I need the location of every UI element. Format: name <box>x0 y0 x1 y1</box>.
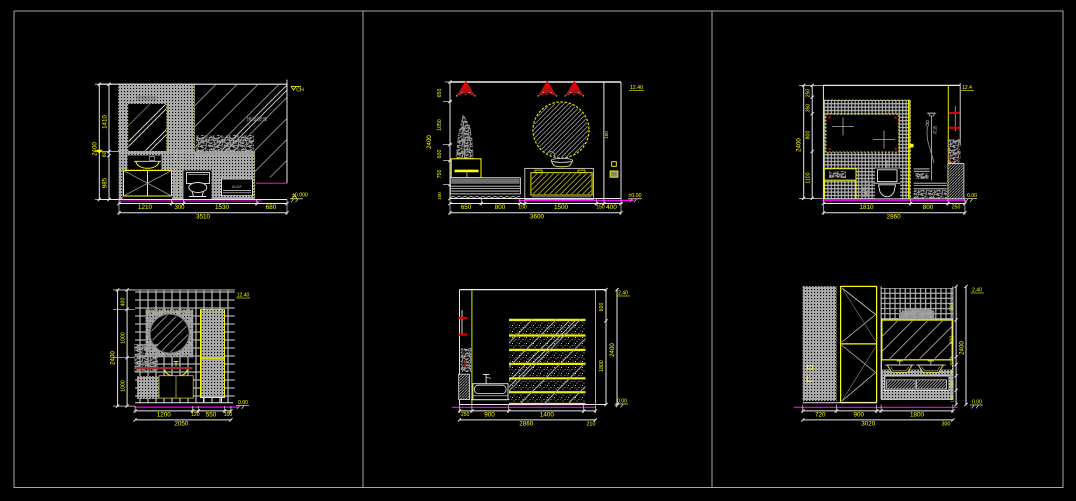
svg-text:800: 800 <box>923 204 934 211</box>
svg-text:±0.00: ±0.00 <box>629 193 642 199</box>
svg-text:1530: 1530 <box>215 204 230 211</box>
svg-text:210: 210 <box>587 421 596 427</box>
svg-text:900: 900 <box>484 411 495 418</box>
svg-text:600: 600 <box>437 150 443 159</box>
svg-text:250: 250 <box>949 359 954 367</box>
svg-text:1410: 1410 <box>102 115 109 129</box>
svg-text:2400: 2400 <box>609 343 616 357</box>
svg-text:2050: 2050 <box>174 420 189 427</box>
svg-text:1200: 1200 <box>157 411 172 418</box>
svg-text:花洒: 花洒 <box>932 126 939 134</box>
svg-text:12.40: 12.40 <box>237 293 250 299</box>
svg-text:1400: 1400 <box>540 411 555 418</box>
svg-text:2.40: 2.40 <box>618 291 628 297</box>
svg-text:350: 350 <box>806 104 812 113</box>
svg-text:2400: 2400 <box>426 135 433 149</box>
svg-text:2400: 2400 <box>796 138 803 152</box>
svg-text:250: 250 <box>952 205 961 211</box>
svg-text:2860: 2860 <box>519 420 534 427</box>
svg-text:100: 100 <box>224 412 233 418</box>
svg-text:680: 680 <box>266 204 277 211</box>
svg-text:12.4: 12.4 <box>962 85 972 91</box>
svg-text:650: 650 <box>437 89 443 98</box>
svg-text:1210: 1210 <box>138 204 153 211</box>
svg-text:900: 900 <box>853 411 864 418</box>
svg-text:2860: 2860 <box>887 214 902 221</box>
svg-text:CH: CH <box>296 88 304 94</box>
svg-text:3020: 3020 <box>861 420 876 427</box>
svg-text:350: 350 <box>949 380 954 388</box>
svg-text:M.DF: M.DF <box>232 184 242 189</box>
svg-text:100: 100 <box>949 395 954 402</box>
svg-text:750: 750 <box>437 170 443 179</box>
svg-text:150: 150 <box>596 205 605 211</box>
svg-text:150: 150 <box>604 131 609 139</box>
svg-text:700: 700 <box>949 303 955 312</box>
svg-text:100: 100 <box>437 192 442 200</box>
svg-text:650: 650 <box>461 204 472 211</box>
svg-text:150: 150 <box>518 205 527 211</box>
svg-text:1100: 1100 <box>806 172 812 183</box>
svg-text:250: 250 <box>806 89 812 98</box>
svg-text:2400: 2400 <box>958 341 965 355</box>
svg-text:2.40: 2.40 <box>972 288 982 294</box>
svg-text:1810: 1810 <box>859 204 874 211</box>
svg-text:0.00: 0.00 <box>967 193 977 199</box>
svg-text:0.00: 0.00 <box>972 400 982 406</box>
svg-text:300: 300 <box>942 421 951 427</box>
svg-text:1050: 1050 <box>437 119 443 131</box>
svg-text:1500: 1500 <box>554 204 569 211</box>
svg-text:250: 250 <box>461 412 470 418</box>
svg-text:600: 600 <box>599 303 605 312</box>
svg-text:3510: 3510 <box>196 214 211 221</box>
svg-text:0.00: 0.00 <box>617 399 627 405</box>
svg-text:50: 50 <box>949 369 954 374</box>
svg-text:400: 400 <box>606 204 617 211</box>
svg-text:1800: 1800 <box>599 360 605 372</box>
svg-text:60: 60 <box>102 152 108 158</box>
svg-text:985: 985 <box>102 177 109 188</box>
svg-text:1800: 1800 <box>910 411 925 418</box>
svg-text:1000: 1000 <box>121 332 127 344</box>
svg-text:400: 400 <box>121 298 127 307</box>
svg-text:720: 720 <box>815 411 826 418</box>
svg-text:800: 800 <box>806 131 812 140</box>
svg-text:120: 120 <box>191 412 200 418</box>
svg-text:烤漆玻璃: 烤漆玻璃 <box>247 115 268 123</box>
svg-text:2400: 2400 <box>110 351 117 365</box>
svg-text:12.40: 12.40 <box>630 85 643 91</box>
svg-text:2400: 2400 <box>91 142 98 156</box>
svg-text:银镜嵌装: 银镜嵌装 <box>136 94 157 102</box>
svg-text:800: 800 <box>949 336 955 345</box>
svg-text:1000: 1000 <box>121 380 127 392</box>
svg-text:0.00: 0.00 <box>238 400 248 406</box>
svg-text:3600: 3600 <box>530 214 545 221</box>
svg-text:300: 300 <box>174 205 185 211</box>
svg-text:800: 800 <box>495 204 506 211</box>
svg-text:550: 550 <box>206 411 217 418</box>
